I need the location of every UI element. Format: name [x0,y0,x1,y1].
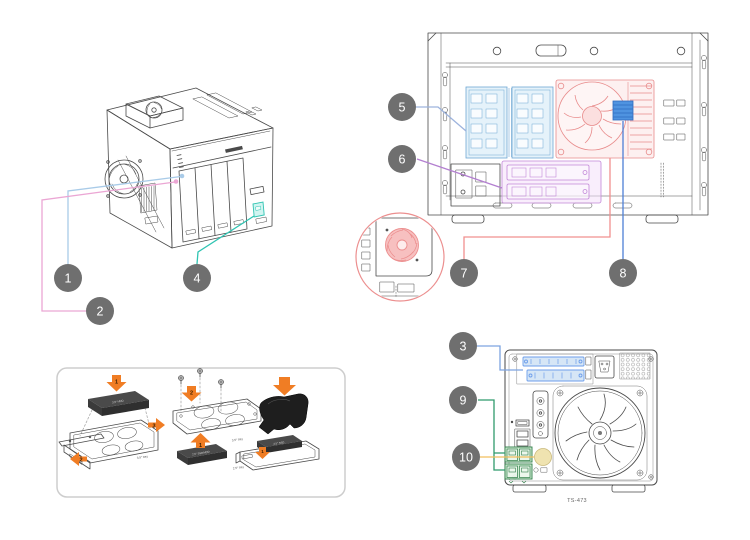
leader-1 [68,177,181,265]
cpu-cooler-highlight [556,80,654,158]
io-brackets [664,100,685,140]
internal-fan-side-icon [105,160,143,198]
callout-4[interactable]: 4 [183,264,211,292]
pcie-slots-highlight [523,357,584,381]
speaker-highlight [535,449,552,466]
callout-number: 3 [460,340,467,354]
drive-bays [179,158,247,242]
callout-number: 4 [194,272,201,286]
arrow-number: 3 [152,424,155,430]
callout-6[interactable]: 6 [388,145,416,173]
internal-side-view [428,33,708,223]
mount-slots-right [701,55,706,196]
leader-6 [417,159,502,188]
model-label: TS-473 [567,498,587,504]
leader-2 [42,182,175,311]
ram-modules-highlight [466,87,553,158]
rear-foot [513,485,546,492]
rear-view: TS-473 [505,350,657,504]
rear-foot [612,485,645,492]
chassis-foot [452,215,484,223]
callout-number: 6 [399,153,406,167]
fan-detail-view [356,213,444,301]
usb-ports [511,420,530,447]
rear-fan [553,386,647,480]
system-fan-highlight [386,229,419,262]
callout-9[interactable]: 9 [449,386,477,414]
power-inlet [595,356,614,378]
callout-2[interactable]: 2 [86,297,114,325]
callout-5[interactable]: 5 [388,93,416,121]
callout-7[interactable]: 7 [450,259,478,287]
callout-number: 9 [460,394,467,408]
m2-ssd-highlight [502,161,601,203]
callout-10[interactable]: 10 [452,443,480,471]
usb-copy-port-highlight [253,202,264,217]
callout-8[interactable]: 8 [609,259,637,287]
chassis-foot [646,215,678,223]
arrow-number: 2 [190,391,193,397]
callout-number: 7 [461,267,468,281]
arrow-number: 2 [79,458,82,464]
mount-slots-left [442,72,447,194]
callout-number: 2 [97,305,104,319]
callout-1[interactable]: 1 [54,264,82,292]
psu-fan-icon [146,102,162,118]
thermal-pad-highlight [613,101,633,120]
leader-9 [478,400,505,470]
hardware-diagram-canvas: TS-473 3.5" HDD [0,0,750,535]
brand-logo [225,146,243,153]
front-isometric-view [105,88,273,248]
hex-vent [620,353,650,379]
lan-ports-highlight [505,447,532,483]
reset-button-icon [534,468,547,472]
callout-number: 8 [620,267,627,281]
arrow-number: 1 [115,380,118,386]
power-button [250,186,264,194]
callout-number: 10 [459,451,473,465]
drive-tray-guide: 3.5" HDD 1 2 3 3.5" tray [57,368,345,497]
callout-3[interactable]: 3 [449,332,477,360]
arrow-number: 1 [199,443,202,449]
audio-jacks [533,391,548,438]
callout-number: 1 [65,272,72,286]
callout-number: 5 [399,101,406,115]
